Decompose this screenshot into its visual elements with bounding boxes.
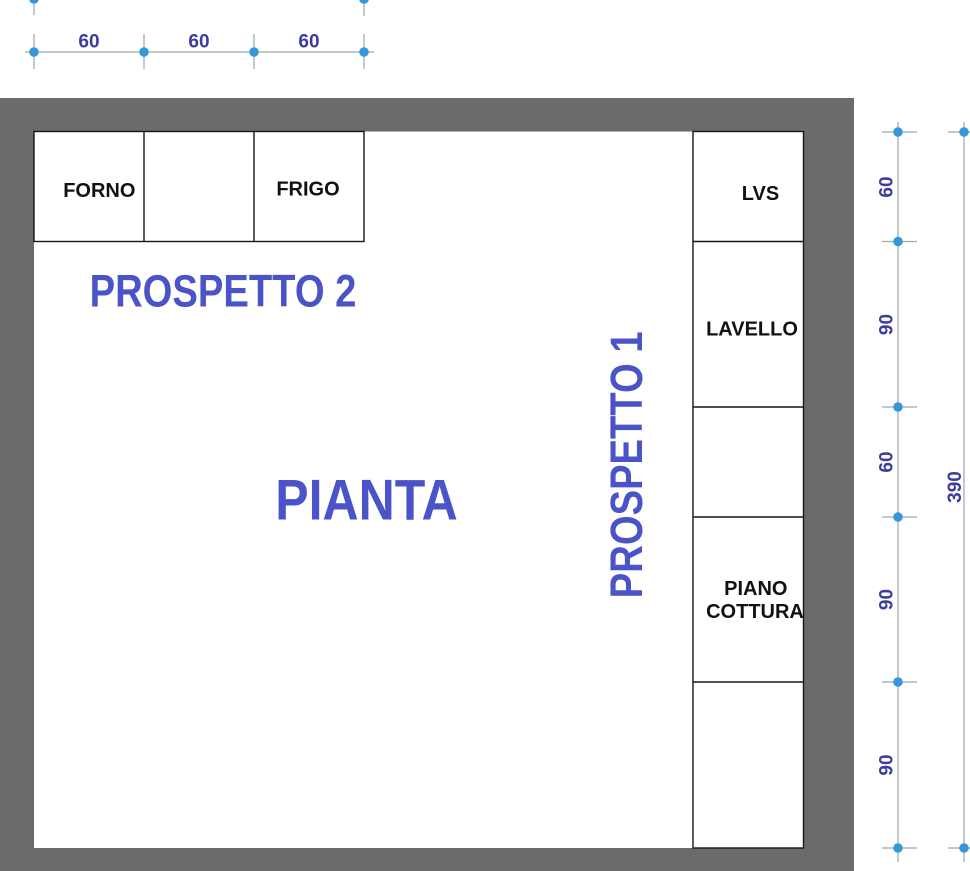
svg-text:90: 90 [876, 754, 897, 775]
svg-text:COTTURA: COTTURA [706, 601, 804, 623]
svg-text:60: 60 [188, 31, 209, 52]
svg-text:90: 90 [876, 589, 897, 610]
svg-text:FORNO: FORNO [63, 180, 135, 202]
svg-text:60: 60 [876, 451, 897, 472]
svg-text:PIANTA: PIANTA [275, 468, 457, 532]
svg-text:LVS: LVS [742, 183, 779, 205]
svg-text:90: 90 [876, 314, 897, 335]
svg-text:FRIGO: FRIGO [276, 179, 339, 201]
svg-text:60: 60 [298, 31, 319, 52]
svg-text:390: 390 [945, 471, 966, 503]
svg-text:PROSPETTO 1: PROSPETTO 1 [601, 331, 652, 598]
svg-text:PIANO: PIANO [724, 578, 787, 600]
svg-text:PROSPETTO 2: PROSPETTO 2 [90, 265, 357, 316]
svg-text:60: 60 [78, 31, 99, 52]
svg-text:60: 60 [876, 176, 897, 197]
svg-text:LAVELLO: LAVELLO [706, 319, 798, 341]
